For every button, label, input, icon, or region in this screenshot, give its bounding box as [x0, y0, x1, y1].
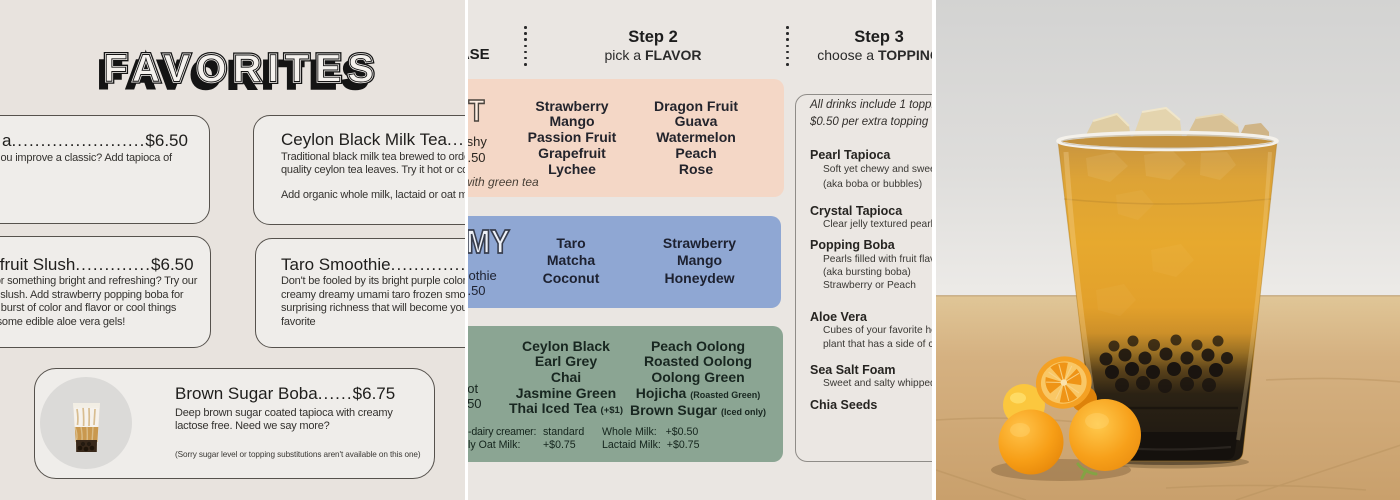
svg-text:T: T	[469, 93, 485, 128]
svg-text:FAVORITES: FAVORITES	[104, 48, 381, 91]
